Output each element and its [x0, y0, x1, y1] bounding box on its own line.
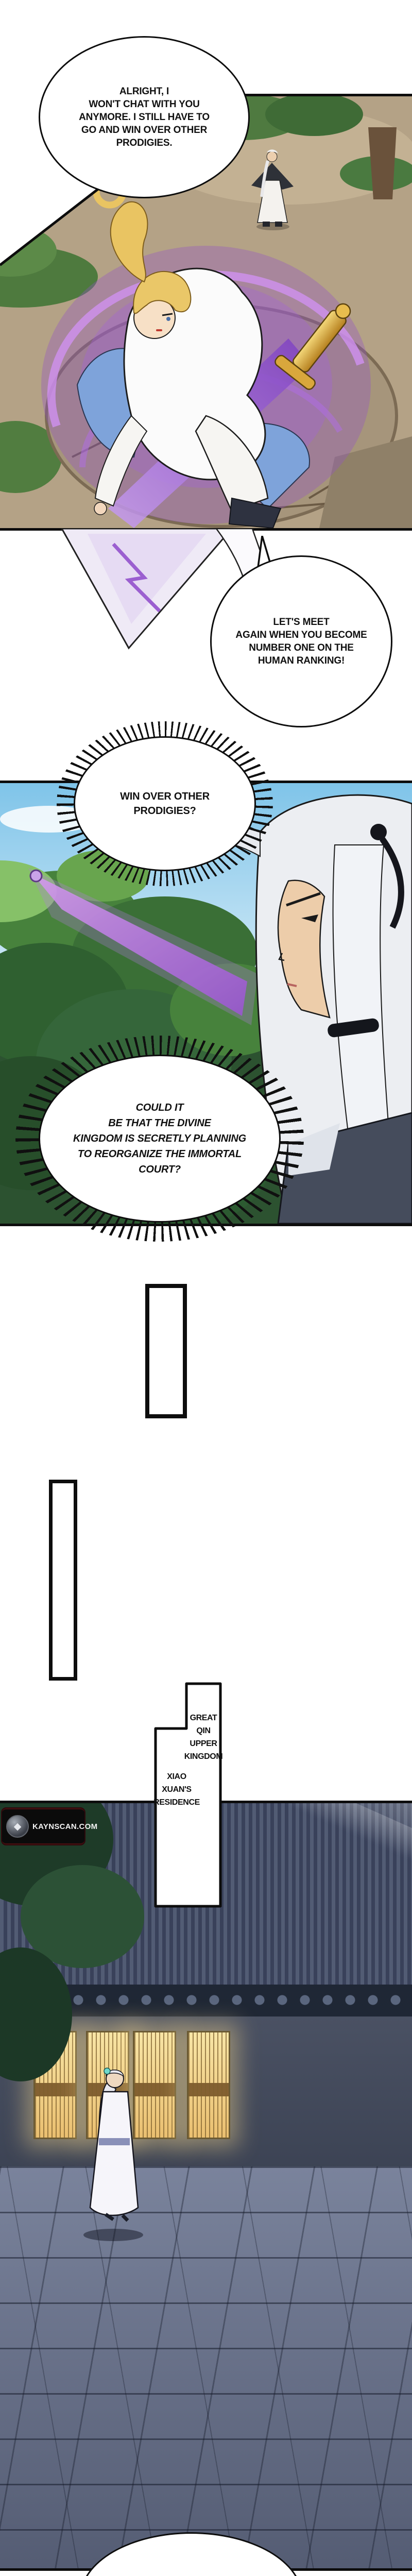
- speech-bubble-2: LET'S MEET AGAIN WHEN YOU BECOME NUMBER …: [210, 555, 392, 727]
- kaynscan-logo-icon: ◆: [6, 1815, 29, 1838]
- courtyard-window: [187, 2031, 230, 2139]
- bubble-text: LET'S MEET: [273, 616, 329, 629]
- empty-caption-box-2: [49, 1480, 77, 1681]
- bubble-text: COULD IT: [136, 1100, 184, 1115]
- caption-text: KINGDOM: [184, 1750, 223, 1763]
- caption-text: UPPER: [190, 1737, 217, 1750]
- shout-bubble-3: WIN OVER OTHER PRODIGIES?: [57, 721, 273, 886]
- bubble-text: ALRIGHT, I: [119, 85, 169, 98]
- bubble-text: PRODIGIES.: [116, 137, 173, 149]
- bubble-text: AGAIN WHEN YOU BECOME: [235, 629, 367, 641]
- bubble-text: NUMBER ONE ON THE: [249, 641, 354, 654]
- flying-figure-speck: [30, 870, 42, 882]
- caption-text: RESIDENCE: [153, 1796, 200, 1809]
- caption-text: XUAN'S: [162, 1783, 191, 1796]
- caption-great-qin-upper-kingdom: GREAT QIN UPPER KINGDOM: [187, 1711, 220, 1763]
- bubble-text: WON'T CHAT WITH YOU: [89, 98, 199, 111]
- watermark-text: KAYNSCAN.COM: [32, 1822, 97, 1831]
- bubble-text: TO REORGANIZE THE IMMORTAL: [78, 1146, 242, 1162]
- walking-figure: [77, 2061, 154, 2246]
- bubble-text: COURT?: [139, 1162, 181, 1177]
- bubble-text: WIN OVER OTHER: [120, 789, 210, 804]
- bubble-text: KINGDOM IS SECRETLY PLANNING: [73, 1131, 246, 1146]
- bubble-text: BE THAT THE DIVINE: [108, 1115, 211, 1131]
- bubble-text: HUMAN RANKING!: [258, 654, 345, 667]
- empty-caption-box-1: [145, 1284, 187, 1418]
- bubble-text: GO AND WIN OVER OTHER: [81, 124, 207, 137]
- speech-bubble-1: ALRIGHT, I WON'T CHAT WITH YOU ANYMORE. …: [39, 36, 250, 198]
- caption-text: GREAT: [190, 1711, 217, 1724]
- comic-page: ALRIGHT, I WON'T CHAT WITH YOU ANYMORE. …: [0, 0, 412, 2576]
- caption-text: QIN: [196, 1724, 210, 1737]
- bubble-text: PRODIGIES?: [133, 804, 196, 818]
- caption-text: XIAO: [167, 1770, 186, 1783]
- watermark-badge: ◆ KAYNSCAN.COM: [1, 1807, 85, 1845]
- courtyard-stone-floor: [0, 2166, 412, 2571]
- thought-bubble-4: COULD IT BE THAT THE DIVINE KINGDOM IS S…: [15, 1036, 304, 1242]
- bubble-text: ANYMORE. I STILL HAVE TO: [79, 111, 210, 124]
- caption-xiao-xuans-residence: XIAO XUAN'S RESIDENCE: [154, 1770, 199, 1809]
- panel-courtyard-night: [0, 1801, 412, 2571]
